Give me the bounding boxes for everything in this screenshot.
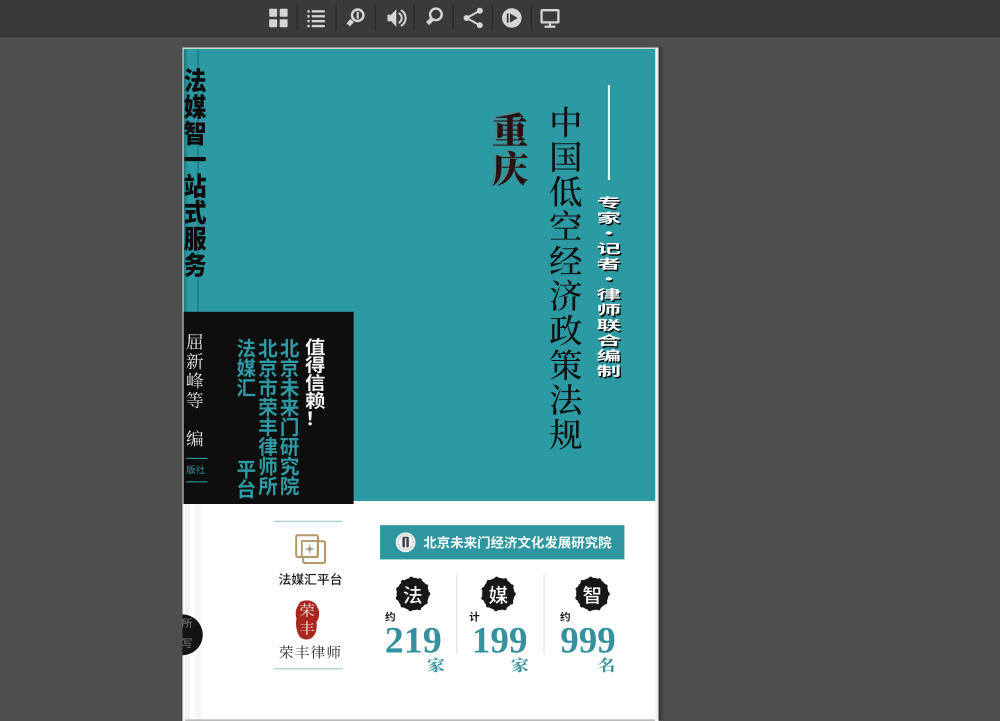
svg-text:199: 199 [472, 620, 528, 661]
svg-text:999: 999 [560, 620, 616, 661]
svg-text:219: 219 [385, 620, 442, 661]
